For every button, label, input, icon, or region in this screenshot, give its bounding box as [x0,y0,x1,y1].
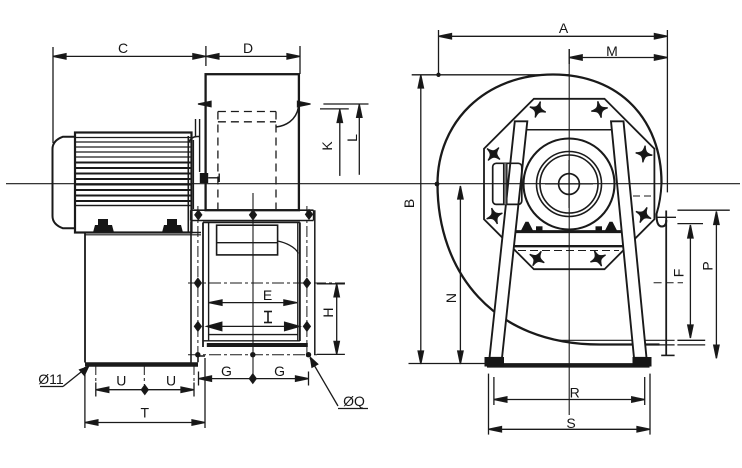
svg-text:L: L [344,134,360,142]
svg-text:P: P [700,261,716,270]
svg-text:E: E [263,287,272,303]
svg-text:G: G [274,363,285,379]
svg-text:U: U [116,373,126,389]
svg-text:N: N [443,293,459,303]
svg-text:F: F [671,269,687,278]
svg-text:T: T [141,405,150,421]
svg-text:S: S [566,415,575,431]
svg-text:R: R [570,385,580,401]
svg-text:K: K [319,141,335,151]
svg-text:G: G [221,363,232,379]
svg-text:M: M [606,43,618,59]
svg-text:U: U [166,373,176,389]
svg-text:D: D [243,40,253,56]
svg-text:Ø11: Ø11 [38,371,64,387]
svg-text:H: H [320,307,336,317]
svg-text:ØQ: ØQ [343,393,365,409]
svg-text:C: C [118,40,128,56]
svg-text:B: B [401,199,417,208]
svg-text:A: A [559,20,569,36]
